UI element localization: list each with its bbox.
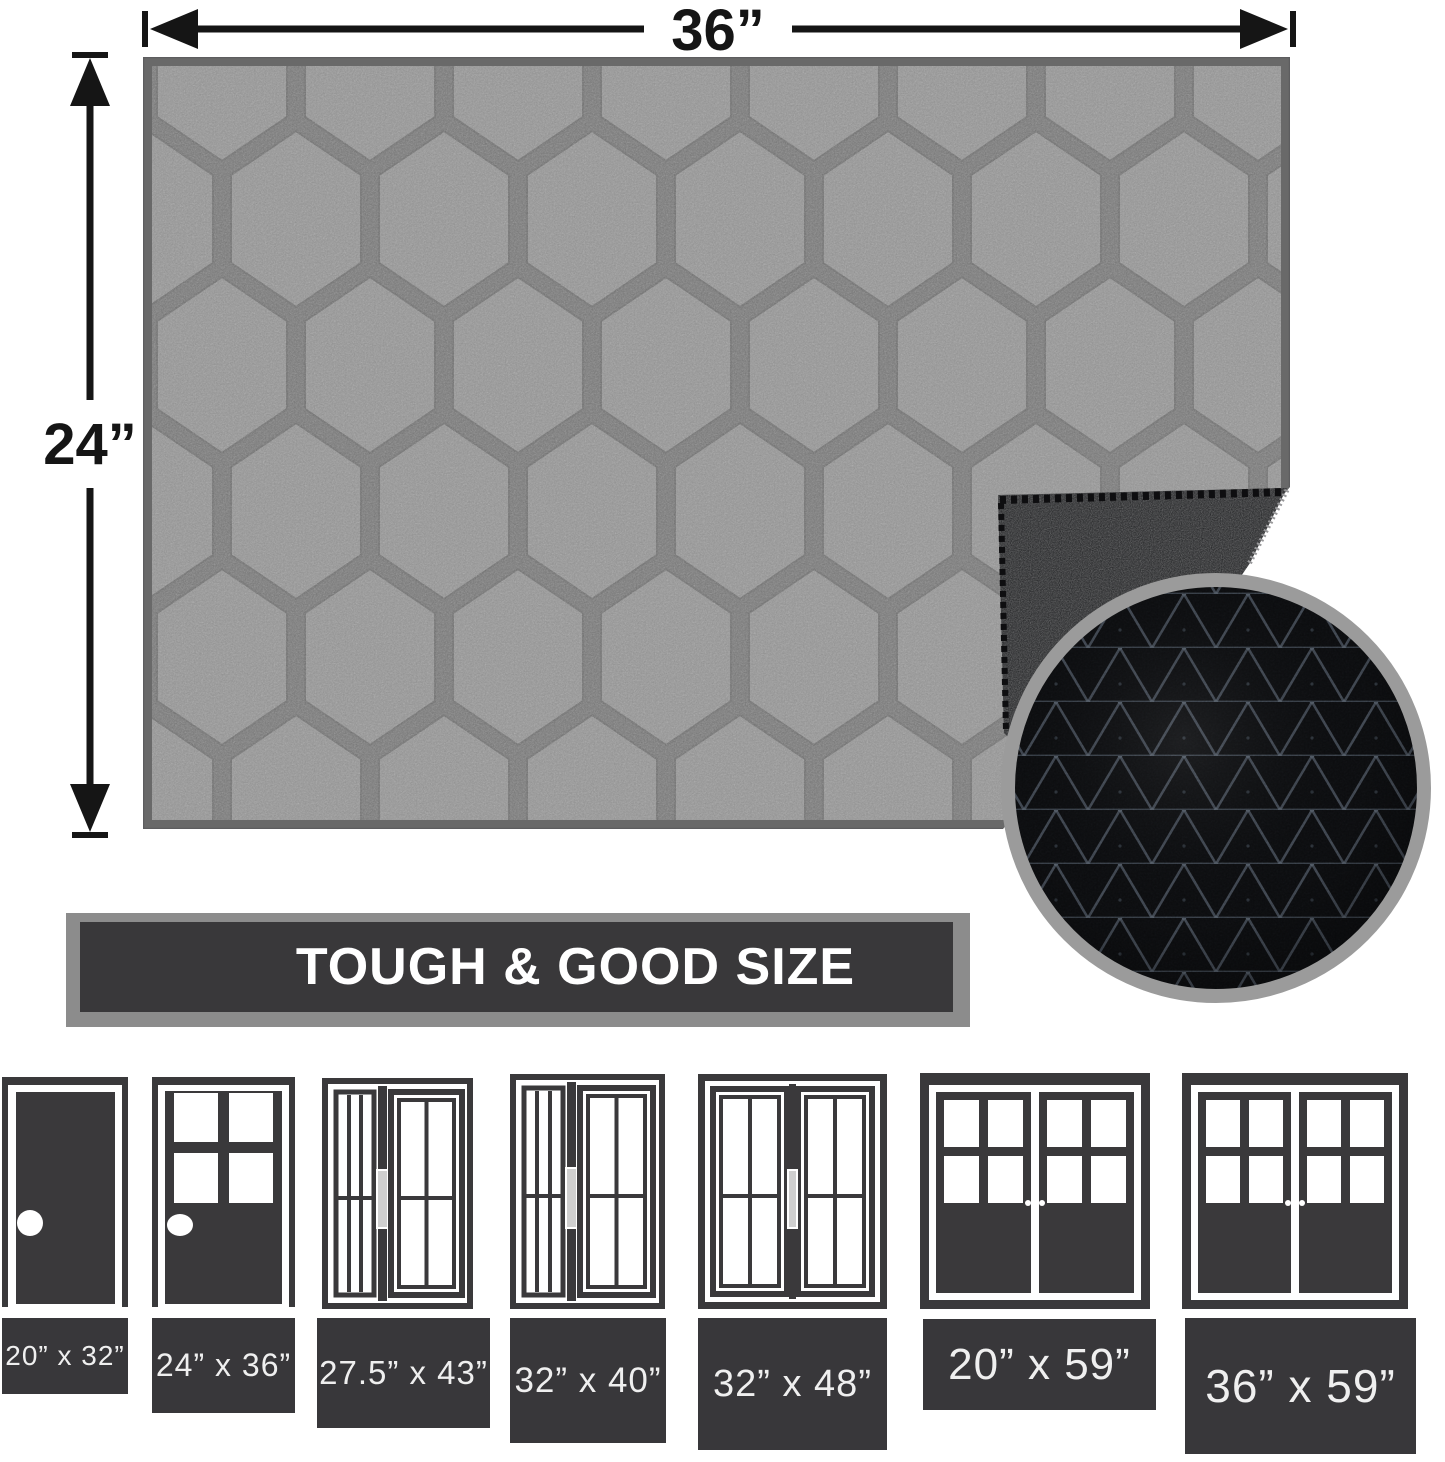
width-arrow: 36” (142, 0, 1296, 63)
door-knob (1039, 1200, 1045, 1206)
french-double-door-icon (920, 1073, 1150, 1309)
height-dimension-label: 24” (43, 412, 137, 477)
size-option-label: 36” x 59” (1185, 1318, 1416, 1454)
single-solid-door-icon (2, 1077, 128, 1309)
size-option-label: 20” x 32” (2, 1318, 128, 1394)
size-option-label: 20” x 59” (923, 1319, 1156, 1410)
sliding-door-icon (322, 1078, 473, 1309)
sliding-door-icon (510, 1074, 665, 1309)
banner-title: TOUGH & GOOD SIZE (296, 937, 855, 997)
door-handle (788, 1170, 797, 1228)
size-option-label: 27.5” x 43” (317, 1318, 490, 1428)
size-chart-row: 20” x 32” 24” x 36” 27.5” x 43” 32” x 40… (0, 1073, 1445, 1462)
height-arrow: 24” (43, 52, 137, 838)
size-option-label: 32” x 48” (698, 1318, 887, 1450)
backing-closeup-inset (1008, 580, 1428, 1000)
french-double-door-icon (1182, 1073, 1408, 1309)
door-knob (1299, 1200, 1305, 1206)
size-option-label: 24” x 36” (152, 1318, 295, 1413)
door-knob (167, 1214, 193, 1236)
door-knob (1285, 1200, 1291, 1206)
double-sliding-door-icon (698, 1074, 887, 1309)
size-option-label: 32” x 40” (510, 1318, 666, 1443)
banner: TOUGH & GOOD SIZE (80, 922, 953, 1012)
door-handle (377, 1170, 388, 1228)
door-knob (17, 1210, 43, 1236)
product-infographic: 36” 24” (0, 0, 1445, 1462)
door-knob (1025, 1200, 1031, 1206)
door-handle (566, 1168, 577, 1228)
width-dimension-label: 36” (671, 0, 765, 63)
half-glass-door-icon (152, 1077, 295, 1309)
